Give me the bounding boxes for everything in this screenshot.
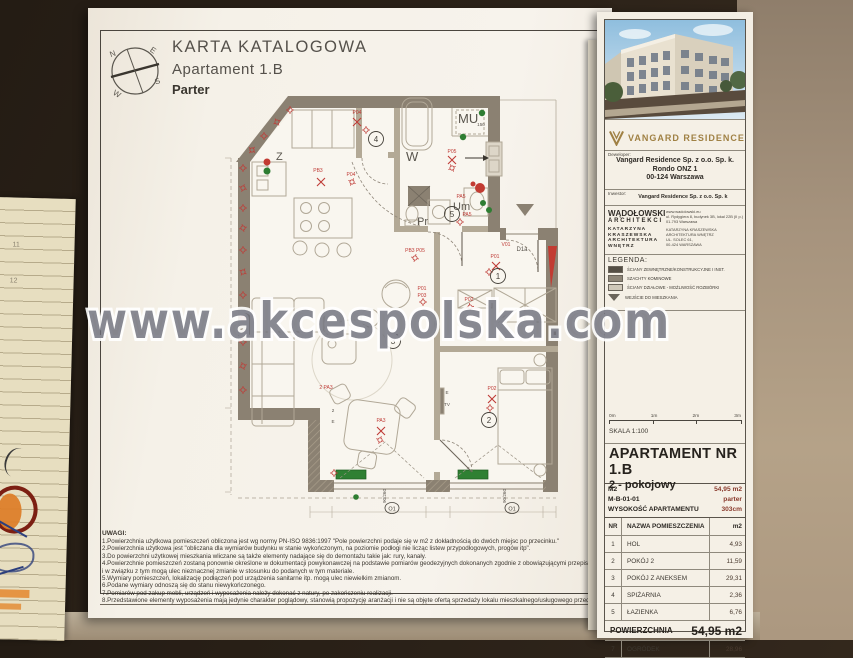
notebook-line-number: 11	[12, 241, 19, 248]
column-header: m2	[710, 523, 745, 530]
investor-section: Inwestor: Vangard Residence Sp. z o.o. S…	[605, 190, 745, 206]
interior-architect-address: 00-424 WARSZAWA	[666, 243, 745, 248]
investor-value: Vangard Residence Sp. z o.o. Sp. k	[638, 194, 727, 205]
room-nr: 5	[605, 604, 622, 620]
brand-bar: VANGARD RESIDENCE	[605, 125, 745, 151]
apartment-title-block: APARTAMENT NR 1.B 2 - pokojowy	[605, 444, 745, 484]
note-line: 6.Podane wymiary odnoszą się do stanu ni…	[102, 582, 599, 589]
room-name: POKÓJ 2	[622, 553, 710, 569]
room-nr: 4	[605, 587, 622, 603]
room-number-5: 5	[450, 210, 455, 219]
room-name: OGRÓDEK	[622, 641, 710, 657]
info-label: WYSOKOŚĆ APARTAMENTU	[608, 505, 699, 515]
apartment-number: APARTAMENT NR 1.B	[609, 446, 745, 478]
window-dimension: 90/260	[502, 489, 507, 503]
note-line: 8.Przedstawione elementy wyposażenia maj…	[102, 597, 599, 604]
room-area: 29,31	[710, 575, 745, 582]
table-row: 2 POKÓJ 2 11,59	[605, 553, 745, 570]
room-number-3: 3	[391, 337, 396, 346]
room-label-mu: MU	[458, 111, 478, 126]
building-render	[605, 20, 745, 120]
fixture-label: PB3 P05	[405, 248, 425, 254]
compass-s: S	[153, 76, 161, 86]
room-number-1: 1	[496, 272, 501, 281]
info-label: M2	[608, 485, 617, 495]
investor-label: Inwestor:	[605, 190, 626, 205]
column-header: NR	[605, 518, 622, 535]
fixture-label: P04	[353, 110, 362, 116]
fixture-label: PA3	[376, 418, 385, 424]
legend-label: WEJŚCIE DO MIESZKANIA	[625, 295, 678, 300]
door-label: D1a	[516, 247, 528, 253]
notebook-line-number: 12	[10, 277, 18, 284]
developer-line: Rondo ONZ 1	[605, 166, 745, 175]
notes-heading: UWAGI:	[102, 530, 599, 537]
room-name: HOL	[622, 536, 710, 552]
scale-bar	[609, 420, 741, 426]
doodle-orange-stroke	[0, 589, 30, 598]
floor-plan: Z W MU Pr Um 1 2 3 4 5 P04 PB3 P04 P05 P…	[223, 84, 595, 536]
total-area-value: 54,95 m2	[691, 624, 742, 638]
room-label-w: W	[406, 149, 419, 164]
developer-section: Deweloper: Vangard Residence Sp. z o.o. …	[605, 151, 745, 190]
wall-tick-label: E	[331, 419, 334, 424]
fixture-label: V01	[502, 242, 511, 248]
table-row-garden: 7 OGRÓDEK 28,96	[605, 641, 745, 658]
tv-point-label: E	[445, 390, 448, 395]
tv	[440, 388, 444, 414]
note-line: 4.Powierzchnie pomieszczeń zostaną ponow…	[102, 560, 599, 567]
room-number-4: 4	[374, 135, 379, 144]
room-label-z: Z	[276, 151, 283, 163]
table-row: 5 ŁAZIENKA 6,76	[605, 604, 745, 621]
room-area: 11,59	[710, 558, 745, 565]
notes-section: UWAGI: 1.Powierzchnia użytkowa pomieszcz…	[102, 530, 599, 605]
doodle-orange-stroke	[0, 603, 21, 610]
note-line: 7.Pomiarów pod zakup mebli, urządzeń i w…	[102, 590, 599, 597]
scale-tick-label: 0m	[609, 414, 616, 419]
room-nr: 1	[605, 536, 622, 552]
fixture-label: 2 PA3	[319, 385, 332, 391]
room-name: ŁAZIENKA	[622, 604, 710, 620]
architect-name: WĄDOŁOWSKI	[608, 209, 666, 218]
architect-section: WĄDOŁOWSKI ARCHITEKCI KATARZYNA KRASZEWS…	[605, 206, 745, 255]
room-nr: 3	[605, 570, 622, 586]
scale-section: 0m 1m 2m 3m SKALA 1:100	[605, 412, 745, 444]
interior-architect-name: ARCHITEKTURA	[608, 238, 666, 244]
legend-heading: LEGENDA:	[608, 257, 745, 264]
catalog-card-page: N E S W KARTA KATALOGOWA Apartament 1.B …	[88, 8, 612, 618]
window-label: O1	[388, 507, 395, 513]
fixture-label: PA5	[462, 212, 471, 218]
info-value: parter	[723, 495, 742, 505]
fixture-label: PB3	[313, 168, 323, 174]
scale-tick-label: 3m	[734, 414, 741, 419]
room-number-2: 2	[487, 416, 492, 425]
table-row: 3 POKÓJ Z ANEKSEM 29,31	[605, 570, 745, 587]
brand-name: VANGARD RESIDENCE	[628, 133, 745, 143]
room-area: 6,76	[710, 609, 745, 616]
compass-n: N	[109, 49, 118, 60]
total-area-label: POWIERZCHNIA	[610, 626, 673, 635]
note-line: i w związku z tym mogą ulec nieznacznej …	[102, 568, 599, 575]
legend-swatch-shafts	[608, 275, 623, 282]
legend-label: ŚCIANY DZIAŁOWE - MOŻLIWOŚĆ ROZBIÓRKI	[627, 285, 719, 290]
room-nr: 7	[605, 641, 622, 657]
legend-label: SZACHTY KOMINOWE	[627, 276, 671, 281]
legend-section: LEGENDA: ŚCIANY ZEWNĘTRZNE/KONSTRUKCYJNE…	[605, 255, 745, 311]
document-title: KARTA KATALOGOWA	[172, 38, 367, 57]
compass-rose: N E S W	[106, 42, 164, 100]
radiator	[458, 470, 488, 479]
fixture-label: P01	[491, 254, 500, 260]
note-line: 2.Powierzchnia użytkowa jest "obliczana …	[102, 545, 599, 552]
fixture-label: PA5	[456, 194, 465, 200]
fixture-label: P01	[418, 286, 427, 292]
scale-tick-label: 2m	[693, 414, 700, 419]
entrance-triangle	[516, 204, 534, 216]
note-line: 3.Do powierzchni użytkowej mieszkania wl…	[102, 553, 599, 560]
total-area-row: POWIERZCHNIA 54,95 m2	[605, 621, 745, 641]
meter-box	[486, 142, 502, 176]
window-dimension: 90/260	[382, 489, 387, 503]
fixture-label: P02	[488, 386, 497, 392]
blank-area	[605, 311, 745, 412]
tv-point-label: TV	[444, 402, 451, 407]
room-label-pr: Pr	[417, 216, 428, 228]
column-header: NAZWA POMIESZCZENIA	[622, 518, 710, 535]
legend-swatch-partition-walls	[608, 284, 623, 291]
fixture-label: P02	[465, 297, 474, 303]
developer-line: Vangard Residence Sp. z o.o. Sp. k.	[605, 157, 745, 166]
photo-of-catalog-card: { "page": { "compass": {"n":"N","e":"E",…	[0, 0, 853, 640]
vangard-logo-icon	[609, 130, 624, 146]
room-name: SPIŻARNIA	[622, 587, 710, 603]
table-header-row: NR NAZWA POMIESZCZENIA m2	[605, 518, 745, 536]
doodle-pen-scribble	[0, 444, 33, 481]
fixture-label: P03	[418, 293, 427, 299]
tree	[720, 80, 732, 92]
note-line: 5.Wymiary pomieszczeń, lokalizację podłą…	[102, 575, 599, 582]
apartment-name: Apartament 1.B	[172, 61, 367, 78]
fixture-label: P05	[448, 149, 457, 155]
legend-swatch-exterior-walls	[608, 266, 623, 273]
desk-surface-right	[737, 0, 853, 640]
legend-swatch-entrance-triangle	[608, 294, 620, 301]
table-row: 1 HOL 4,93	[605, 536, 745, 553]
developer-line: 00-124 Warszawa	[605, 174, 745, 183]
legend-label: ŚCIANY ZEWNĘTRZNE/KONSTRUKCYJNE I INST.	[627, 267, 725, 272]
room-area: 2,36	[710, 592, 745, 599]
notebook-page: 11 12	[0, 197, 76, 641]
note-line: 1.Powierzchnia użytkowa pomieszczeń obli…	[102, 538, 599, 545]
architect-name: ARCHITEKCI	[608, 218, 666, 224]
window-label: O1	[508, 507, 515, 513]
scale-tick-label: 1m	[651, 414, 658, 419]
rooms-table: NR NAZWA POMIESZCZENIA m2 1 HOL 4,93 2 P…	[605, 518, 745, 658]
info-label: M-B-01-01	[608, 495, 640, 505]
interior-architect-name: WNĘTRZ	[608, 244, 666, 250]
project-info-panel: VANGARD RESIDENCE Deweloper: Vangard Res…	[597, 12, 753, 638]
wall-tick-label: 2	[332, 408, 335, 413]
room-name: POKÓJ Z ANEKSEM	[622, 570, 710, 586]
mu-dimension: 150	[477, 122, 485, 127]
table-row: 4 SPIŻARNIA 2,36	[605, 587, 745, 604]
room-nr: 2	[605, 553, 622, 569]
room-area: 28,96	[710, 646, 745, 653]
info-value: 303cm	[721, 505, 742, 515]
room-area: 4,93	[710, 541, 745, 548]
info-value: 54,95 m2	[714, 485, 742, 495]
fixture-label: P04	[347, 172, 356, 178]
scale-label: SKALA 1:100	[609, 428, 741, 435]
